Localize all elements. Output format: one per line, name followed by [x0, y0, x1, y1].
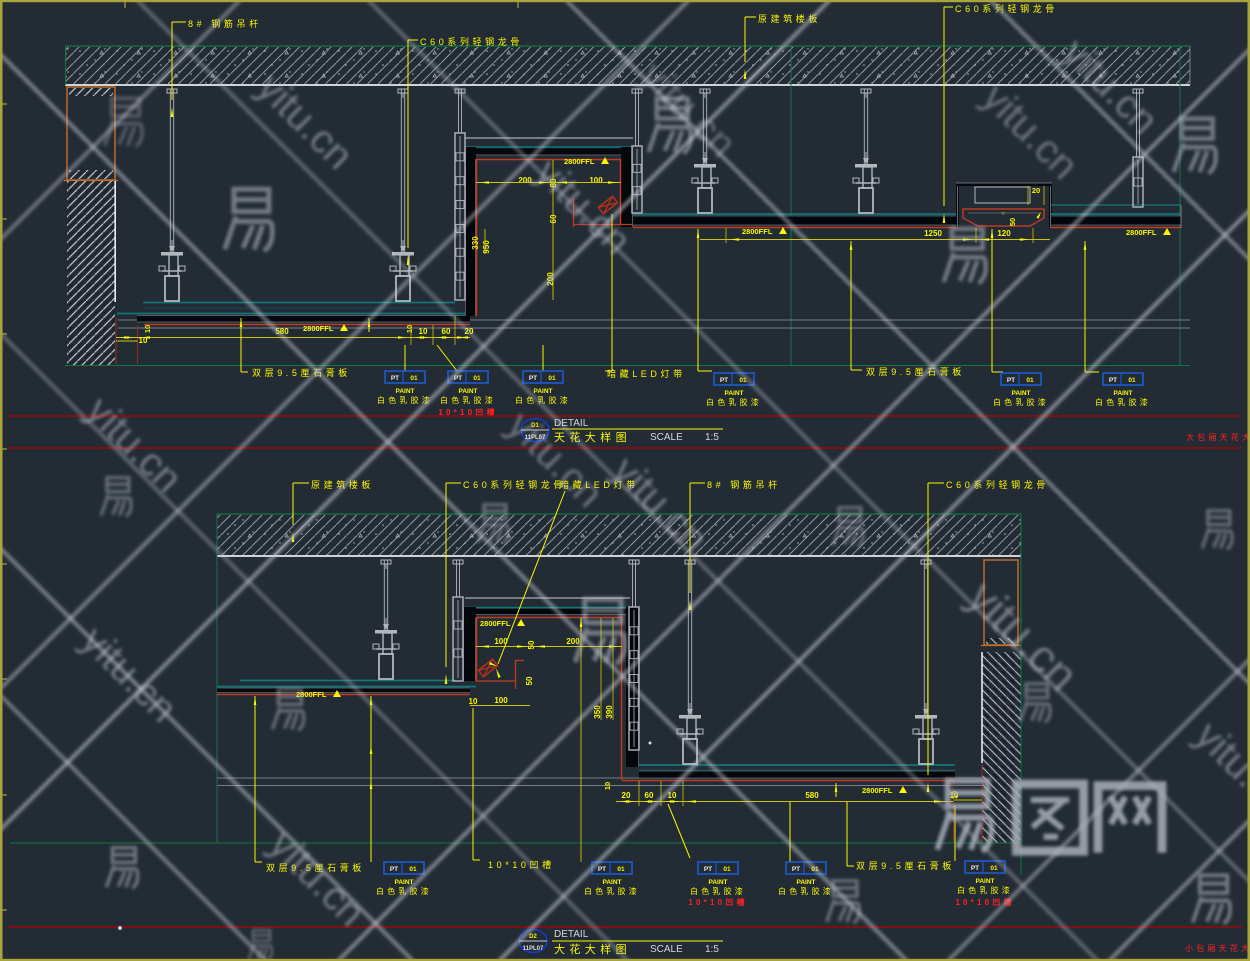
svg-text:10*10凹槽: 10*10凹槽 — [688, 897, 747, 907]
svg-text:白色乳胶漆: 白色乳胶漆 — [584, 886, 640, 896]
svg-text:01: 01 — [723, 866, 731, 873]
svg-text:PT: PT — [1109, 377, 1117, 384]
svg-text:PAINT: PAINT — [602, 879, 621, 886]
svg-text:01: 01 — [1128, 377, 1136, 384]
svg-text:白色乳胶漆: 白色乳胶漆 — [440, 395, 496, 405]
svg-text:10: 10 — [419, 327, 428, 336]
svg-text:PAINT: PAINT — [458, 388, 477, 395]
svg-text:PT: PT — [529, 375, 537, 382]
svg-text:PT: PT — [720, 377, 728, 384]
svg-text:PAINT: PAINT — [1113, 390, 1132, 397]
svg-text:2800FFL: 2800FFL — [1126, 228, 1157, 237]
svg-text:10: 10 — [405, 325, 414, 333]
svg-text:PT: PT — [390, 866, 398, 873]
svg-text:C60系列轻钢龙骨: C60系列轻钢龙骨 — [420, 36, 523, 47]
svg-text:白色乳胶漆: 白色乳胶漆 — [993, 397, 1049, 407]
svg-text:PT: PT — [1007, 377, 1015, 384]
svg-text:10: 10 — [139, 336, 148, 345]
svg-text:PAINT: PAINT — [708, 879, 727, 886]
svg-text:PT: PT — [598, 866, 606, 873]
svg-text:50: 50 — [525, 676, 534, 685]
svg-text:2800FFL: 2800FFL — [480, 619, 511, 628]
svg-text:200: 200 — [566, 637, 580, 646]
svg-text:小包厢天花大样: 小包厢天花大样 — [1185, 943, 1250, 953]
svg-text:1:5: 1:5 — [705, 432, 719, 443]
svg-text:○: ○ — [1001, 211, 1005, 217]
svg-text:D2: D2 — [529, 934, 537, 940]
svg-text:暗藏LED灯带: 暗藏LED灯带 — [607, 368, 686, 379]
svg-text:PAINT: PAINT — [796, 879, 815, 886]
svg-text:120: 120 — [997, 229, 1011, 238]
svg-text:60: 60 — [549, 214, 558, 223]
svg-text:10: 10 — [603, 782, 612, 790]
svg-text:1:5: 1:5 — [705, 944, 719, 955]
svg-text:01: 01 — [473, 375, 481, 382]
svg-text:2800FFL: 2800FFL — [862, 786, 893, 795]
svg-text:PT: PT — [792, 866, 800, 873]
svg-text:C60系列轻钢龙骨: C60系列轻钢龙骨 — [946, 479, 1049, 490]
svg-text:950: 950 — [482, 240, 491, 254]
svg-text:20: 20 — [1032, 186, 1040, 195]
svg-text:1250: 1250 — [924, 229, 942, 238]
svg-text:SCALE: SCALE — [650, 432, 683, 443]
svg-text:2800FFL: 2800FFL — [742, 227, 773, 236]
svg-text:双层9.5厘石膏板: 双层9.5厘石膏板 — [252, 367, 351, 378]
svg-text:C60系列轻钢龙骨: C60系列轻钢龙骨 — [955, 3, 1058, 14]
svg-text:01: 01 — [617, 866, 625, 873]
svg-text:10: 10 — [469, 697, 478, 706]
svg-text:大包厢天花大样: 大包厢天花大样 — [1186, 432, 1250, 442]
svg-text:01: 01 — [548, 375, 556, 382]
svg-text:SCALE: SCALE — [650, 944, 683, 955]
svg-text:50: 50 — [527, 640, 536, 649]
svg-text:8# 钢筋吊杆: 8# 钢筋吊杆 — [707, 479, 781, 490]
svg-text:PAINT: PAINT — [724, 390, 743, 397]
svg-text:白色乳胶漆: 白色乳胶漆 — [778, 886, 834, 896]
svg-text:60: 60 — [645, 791, 654, 800]
svg-text:10: 10 — [143, 325, 152, 333]
svg-text:20: 20 — [622, 791, 631, 800]
svg-text:白色乳胶漆: 白色乳胶漆 — [1095, 397, 1151, 407]
svg-text:01: 01 — [990, 865, 998, 872]
svg-text:DETAIL: DETAIL — [554, 929, 589, 940]
svg-text:01: 01 — [409, 866, 417, 873]
svg-text:PAINT: PAINT — [975, 878, 994, 885]
svg-text:11PL07: 11PL07 — [523, 946, 544, 952]
svg-text:8# 钢筋吊杆: 8# 钢筋吊杆 — [188, 18, 262, 29]
svg-text:100: 100 — [494, 696, 508, 705]
svg-text:01: 01 — [1026, 377, 1034, 384]
svg-text:330: 330 — [471, 236, 480, 250]
svg-text:PT: PT — [971, 865, 979, 872]
svg-text:2800FFL: 2800FFL — [303, 324, 334, 333]
svg-text:PAINT: PAINT — [533, 388, 552, 395]
svg-text:双层9.5厘石膏板: 双层9.5厘石膏板 — [866, 366, 965, 377]
svg-text:双层9.5厘石膏板: 双层9.5厘石膏板 — [856, 860, 955, 871]
svg-text:PAINT: PAINT — [1011, 390, 1030, 397]
svg-text:白色乳胶漆: 白色乳胶漆 — [690, 886, 746, 896]
svg-text:50: 50 — [1008, 218, 1017, 226]
svg-text:白色乳胶漆: 白色乳胶漆 — [957, 885, 1013, 895]
svg-text:PT: PT — [704, 866, 712, 873]
svg-text:白色乳胶漆: 白色乳胶漆 — [706, 397, 762, 407]
svg-text:PT: PT — [391, 375, 399, 382]
svg-text:PAINT: PAINT — [395, 388, 414, 395]
svg-text:10*10凹槽: 10*10凹槽 — [488, 859, 555, 870]
svg-text:60: 60 — [442, 327, 451, 336]
svg-text:100: 100 — [494, 637, 508, 646]
svg-text:01: 01 — [410, 375, 418, 382]
svg-text:PAINT: PAINT — [394, 879, 413, 886]
svg-text:580: 580 — [805, 791, 819, 800]
